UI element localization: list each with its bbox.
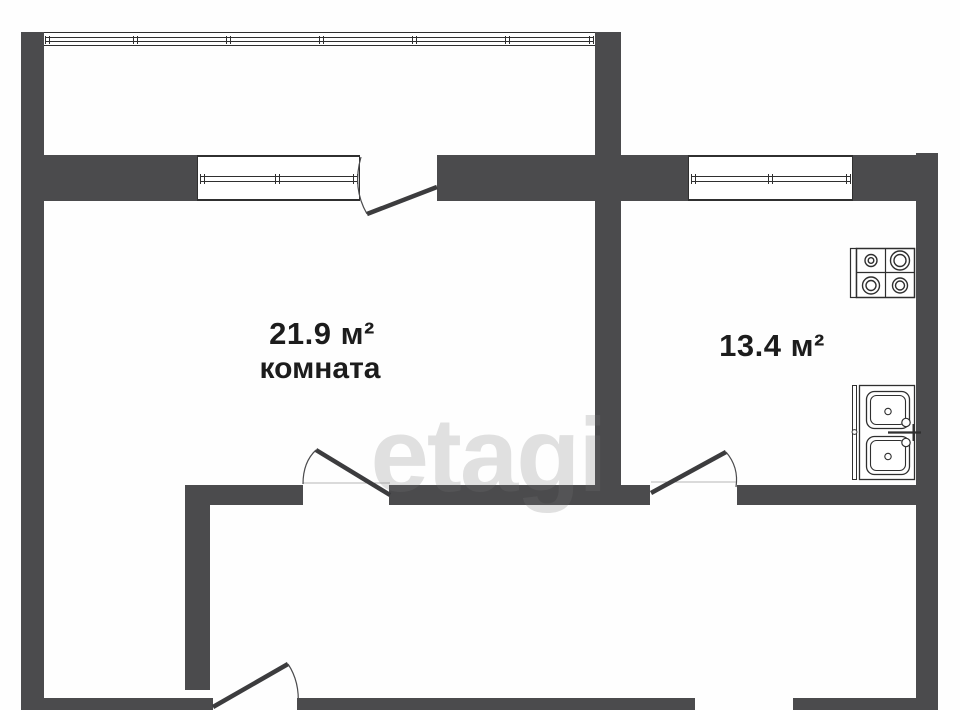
kitchen-area-label: 13.4 м² xyxy=(672,328,872,364)
entry-door-leaf xyxy=(213,664,288,707)
room-door-swing-arc xyxy=(303,450,316,484)
entry-door-swing-arc xyxy=(288,664,298,706)
room-door-leaf xyxy=(316,450,390,495)
room-area-label: 21.9 м² xyxy=(222,316,422,352)
kitchen-door-leaf xyxy=(651,452,726,493)
sink-icon xyxy=(852,386,921,480)
balcony-door-swing-arc xyxy=(358,157,367,214)
stove-icon xyxy=(851,249,915,298)
floor-plan: 21.9 м² комната 13.4 м² etagi xyxy=(0,0,960,710)
room-name-label: комната xyxy=(220,352,420,386)
balcony-door-leaf xyxy=(367,187,437,214)
